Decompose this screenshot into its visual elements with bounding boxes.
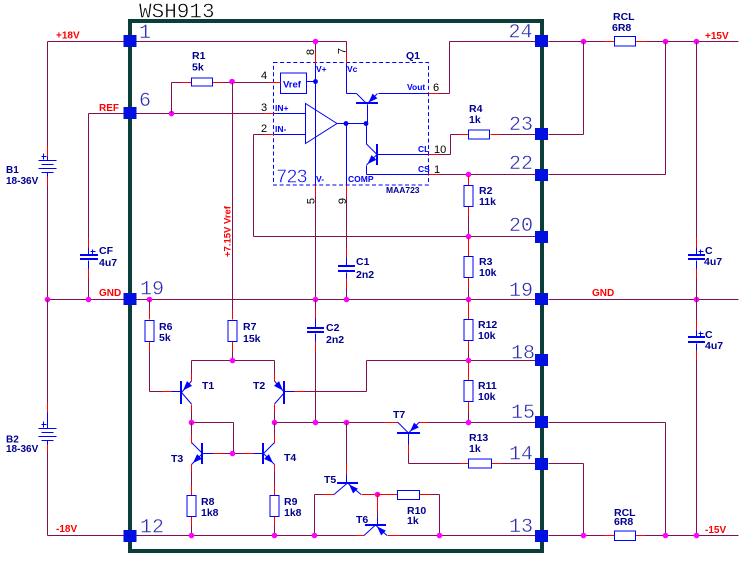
svg-text:8: 8 [305,49,317,55]
svg-text:C2: C2 [326,322,340,334]
svg-text:2n2: 2n2 [326,334,344,346]
svg-text:-18V: -18V [56,524,77,535]
svg-text:REF: REF [99,103,119,114]
svg-text:CS: CS [418,164,430,174]
svg-text:T1: T1 [202,380,214,392]
svg-text:15k: 15k [243,333,261,345]
svg-text:6: 6 [433,82,439,94]
svg-text:T3: T3 [171,453,183,465]
svg-text:6R8: 6R8 [614,516,633,528]
svg-text:GND: GND [99,288,121,299]
svg-text:CF: CF [99,245,114,257]
svg-text:T6: T6 [356,514,368,526]
svg-text:22: 22 [509,153,533,176]
svg-text:24: 24 [509,22,533,45]
svg-text:10k: 10k [478,330,496,342]
svg-text:10k: 10k [478,391,496,403]
svg-text:2: 2 [261,123,267,135]
svg-text:R1: R1 [192,50,206,62]
svg-text:1k: 1k [469,443,481,455]
svg-text:10k: 10k [479,267,497,279]
svg-text:T4: T4 [284,452,296,464]
svg-text:Q1: Q1 [406,50,420,62]
svg-text:23: 23 [509,114,533,137]
svg-text:T2: T2 [253,380,265,392]
svg-text:T5: T5 [324,474,336,486]
svg-text:18-36V: 18-36V [6,176,39,187]
svg-text:723: 723 [276,167,307,189]
svg-text:6: 6 [139,90,151,113]
svg-text:1k: 1k [469,114,481,126]
svg-text:5k: 5k [192,62,204,74]
svg-text:+7.15V Vref: +7.15V Vref [223,205,234,257]
svg-text:4u7: 4u7 [705,340,723,352]
svg-text:9: 9 [337,198,349,204]
svg-text:B1: B1 [6,165,19,176]
svg-text:2n2: 2n2 [356,269,374,281]
svg-text:Vc: Vc [347,64,358,74]
svg-text:IN-: IN- [275,124,287,134]
svg-text:19: 19 [140,279,164,302]
svg-text:11k: 11k [479,196,496,208]
svg-text:+15V: +15V [705,31,729,42]
svg-text:4: 4 [261,70,267,82]
svg-text:13: 13 [509,516,533,539]
svg-text:CL: CL [418,144,429,154]
svg-text:1k8: 1k8 [201,507,219,519]
svg-text:C1: C1 [356,256,370,268]
svg-text:GND: GND [592,288,614,299]
svg-text:20: 20 [509,215,533,238]
svg-text:14: 14 [509,444,533,467]
svg-text:4u7: 4u7 [704,256,722,268]
svg-text:MAA723: MAA723 [386,185,420,195]
svg-text:V-: V- [316,174,324,184]
svg-text:T7: T7 [393,409,405,421]
svg-text:IN+: IN+ [275,103,289,113]
svg-text:4u7: 4u7 [99,257,117,269]
svg-text:1k: 1k [407,515,419,527]
svg-text:18: 18 [511,343,535,366]
svg-text:COMP: COMP [348,174,374,184]
svg-text:5k: 5k [159,332,171,344]
svg-text:R7: R7 [243,321,257,333]
svg-text:6R8: 6R8 [612,22,631,34]
svg-text:15: 15 [511,402,535,425]
svg-text:Vout: Vout [407,82,425,92]
svg-text:3: 3 [261,102,267,114]
svg-text:18-36V: 18-36V [6,444,39,455]
svg-text:7: 7 [337,48,349,54]
svg-text:-15V: -15V [705,525,726,536]
svg-text:19: 19 [509,280,533,303]
svg-text:V+: V+ [316,64,327,74]
svg-text:+18V: +18V [56,31,80,42]
svg-text:12: 12 [140,517,164,540]
svg-text:Vref: Vref [283,80,302,91]
svg-text:1k8: 1k8 [284,507,302,519]
